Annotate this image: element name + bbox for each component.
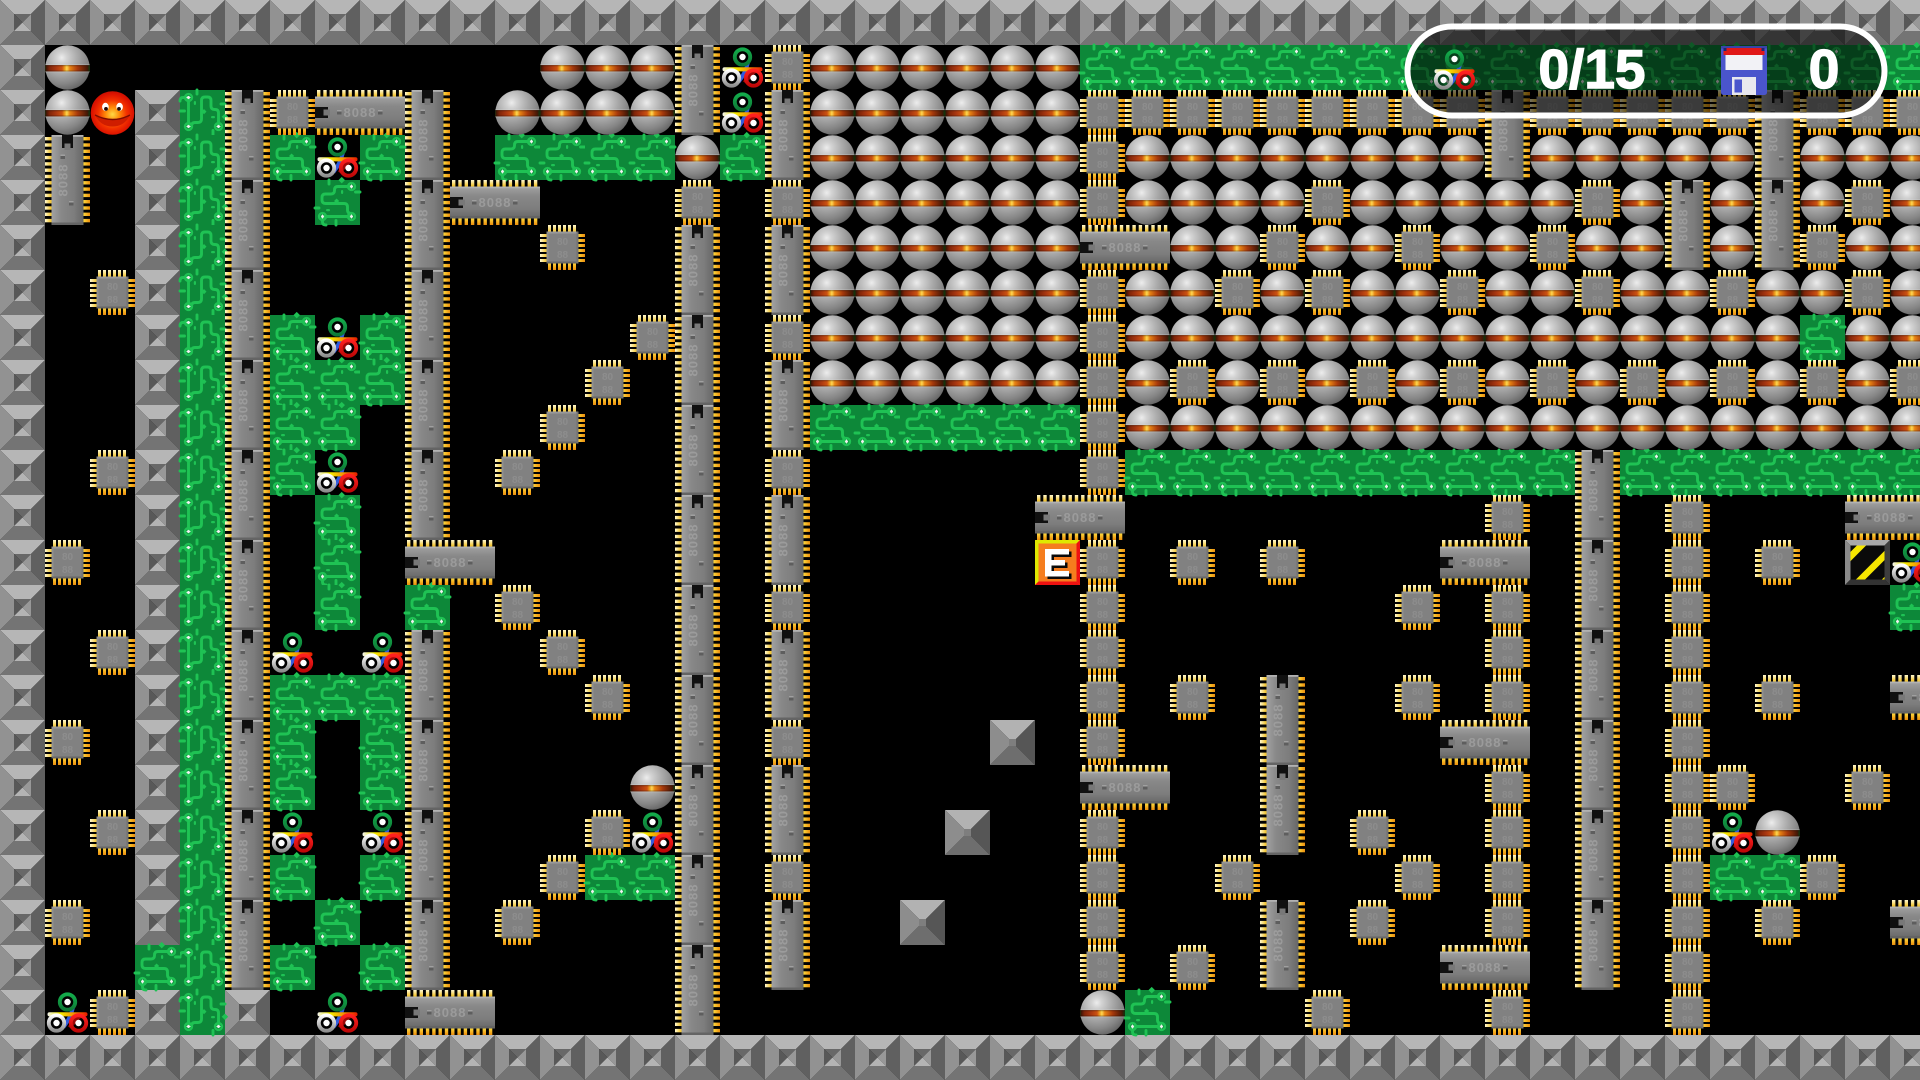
svg-text:0: 0 (1809, 38, 1840, 100)
svg-text:0/15: 0/15 (1538, 38, 1645, 100)
